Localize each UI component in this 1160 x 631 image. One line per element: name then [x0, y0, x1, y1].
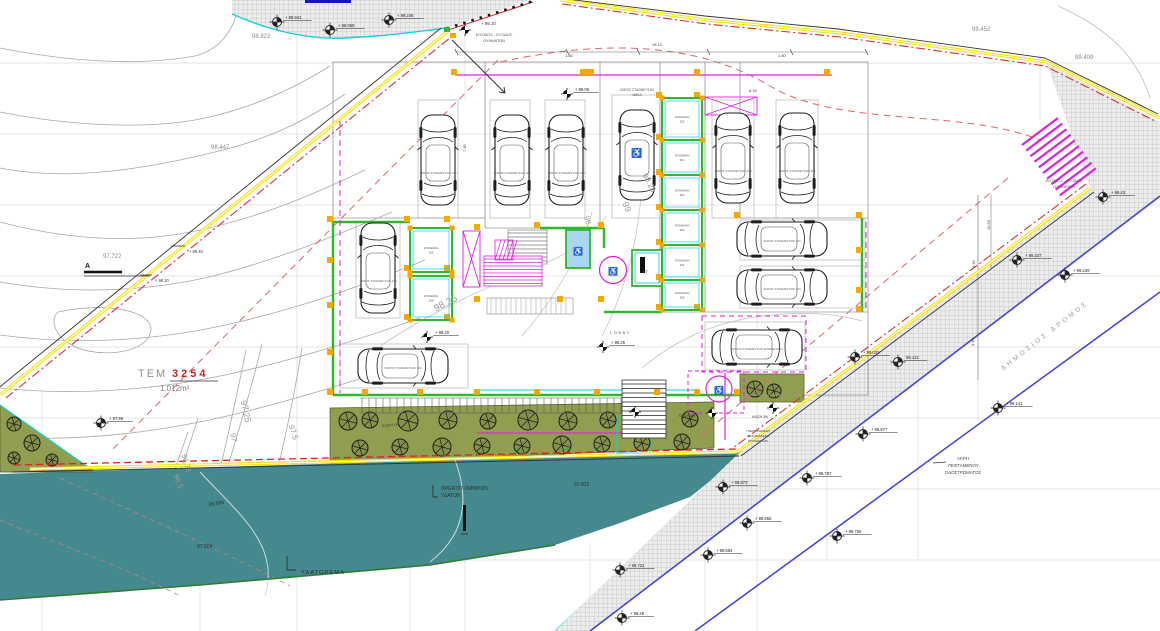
- benchmark-label: + 98.722: [628, 563, 645, 568]
- parked-car: [418, 115, 459, 205]
- map-label: ΑΜΕΑ: [632, 93, 642, 97]
- tree-icon: [8, 452, 20, 464]
- parked-car: [777, 113, 818, 203]
- room-label: ΑΠΟΘΗΚΗ: [675, 154, 690, 158]
- column-block: [660, 173, 665, 178]
- map-label: 99.452: [972, 27, 991, 33]
- dot: [512, 6, 515, 9]
- tree-icon: [439, 411, 457, 429]
- map-label: LOBBY: [610, 330, 631, 335]
- tree-icon: [398, 411, 418, 431]
- map-label: ΥΠΕΡΥΨΩΜΕΝΗ: [746, 429, 771, 433]
- column-block: [557, 296, 563, 302]
- column-block: [700, 96, 705, 101]
- wheelchair-icon: ♿: [573, 246, 583, 256]
- map-label: ΥΔΑΤΟΡΕΜΑ: [301, 570, 345, 576]
- benchmark-label: + 99.337: [1025, 253, 1042, 258]
- column-block: [660, 138, 665, 143]
- column-block: [824, 69, 830, 75]
- column-block: [408, 226, 413, 231]
- map-label: 15.50: [986, 219, 991, 230]
- map-label: 98.447: [211, 145, 230, 151]
- tree-icon: [7, 417, 21, 431]
- room-number: 304: [680, 263, 685, 267]
- parked-car: [492, 115, 533, 205]
- benchmark-label: + 98.655: [755, 516, 772, 521]
- wheelchair-icon: ♿: [608, 266, 618, 276]
- column-block: [654, 389, 660, 395]
- map-label: ΥΦΙΣΤΑΜΕΝΟΥ: [947, 463, 978, 468]
- map-label: LIFT: [640, 270, 648, 274]
- map-label: 1.012m²: [160, 384, 190, 393]
- column-block: [327, 302, 333, 308]
- column-block: [327, 216, 333, 222]
- column-block: [594, 389, 600, 395]
- map-label: 1.80: [565, 53, 574, 58]
- column-block: [451, 69, 457, 75]
- map-label: + 98.40: [189, 249, 203, 254]
- map-label: ΟΧΗΜΑΤΩΝ: [1053, 184, 1075, 189]
- map-label: ΥΔΑΤΩΝ: [441, 493, 461, 499]
- map-label: 3.45: [971, 259, 976, 268]
- parked-car: [546, 115, 587, 205]
- dot: [455, 24, 458, 27]
- tree-icon: [392, 439, 408, 455]
- car-icon: [713, 113, 754, 203]
- dot: [479, 16, 482, 19]
- room-label: ΑΠΟΘΗΚΗ: [675, 224, 690, 228]
- room-label: ΑΠΟΘΗΚΗ: [424, 294, 439, 298]
- column-block: [580, 69, 594, 75]
- parking-spot-label: ΧΩΡΟΣ ΣΤΑΘΜΕΥΣΗΣ 103: [359, 279, 397, 283]
- parking-spot-label: ΧΩΡΟΣ ΣΤΑΘΜΕΥΣΗΣ 101: [384, 366, 422, 370]
- car-icon: [546, 115, 587, 205]
- column-block: [404, 216, 410, 222]
- map-label: 1.80: [778, 53, 787, 58]
- map-label: 97.812: [574, 482, 590, 488]
- map-label: + 99.10: [481, 21, 496, 26]
- column-block: [408, 318, 413, 323]
- entrance-orange-mark: [450, 33, 456, 38]
- column-block: [660, 208, 665, 213]
- parking-spot-label: ΧΩΡΟΣ ΣΤΑΘΜΕΥΣΗΣ 303: [763, 287, 801, 291]
- column-block: [474, 296, 480, 302]
- tree-icon: [594, 436, 610, 452]
- car-icon: [777, 113, 818, 203]
- column-block: [444, 216, 450, 222]
- room-number: 301: [680, 158, 685, 162]
- column-block: [327, 389, 333, 395]
- map-label: 98.822: [252, 34, 271, 40]
- benchmark-label: + 99.141: [1006, 401, 1023, 406]
- column-block: [660, 243, 665, 248]
- wheelchair-icon: ♿: [631, 147, 642, 158]
- column-block: [856, 212, 862, 218]
- column-block: [450, 318, 455, 323]
- map-label: ΠΕΖΟΔΙΑΒΑΣΗ: [747, 434, 769, 438]
- benchmark-label: + 99.43: [1111, 190, 1126, 195]
- room-number: 104: [429, 299, 434, 303]
- room-label: ΑΠΟΘΗΚΗ: [675, 291, 690, 295]
- map-label: ΚΛΙΣΗ 5%: [679, 414, 695, 418]
- column-block: [856, 287, 862, 293]
- column-block: [362, 389, 368, 395]
- map-label: + 98.10: [155, 278, 169, 283]
- map-label: 97.004: [197, 544, 213, 550]
- tree-icon: [352, 440, 368, 456]
- map-label: 7.45: [462, 143, 467, 152]
- benchmark-label: + 98.958: [338, 23, 355, 28]
- column-block: [734, 389, 740, 395]
- column-block: [327, 349, 333, 355]
- tree-icon: [362, 412, 378, 428]
- map-label: ΤΕΜ: [138, 368, 167, 380]
- benchmark-label: + 98.48: [630, 611, 645, 616]
- room-number: 103: [429, 251, 434, 255]
- wheelchair-icon: ♿: [714, 385, 724, 395]
- car-icon: [492, 115, 533, 205]
- dot: [529, 1, 532, 4]
- tree-icon: [514, 438, 530, 454]
- map-label: 99.409: [1075, 55, 1094, 61]
- map-label: ΟΧΗΜΑΤΩΝ: [483, 38, 505, 43]
- entrance-green-mark: [444, 27, 450, 32]
- map-label: 3254: [172, 368, 208, 380]
- room-label: ΑΠΟΘΗΚΗ: [424, 246, 439, 250]
- tree-icon: [339, 412, 357, 430]
- benchmark-label: + 98.25: [611, 340, 626, 345]
- tree-icon: [480, 413, 496, 429]
- room-number: 303: [680, 228, 685, 232]
- tree-icon: [553, 436, 571, 454]
- site-plan-canvas: ♿ ♿ ♿: [0, 0, 1160, 631]
- column-block: [700, 138, 705, 143]
- map-label: 18.10: [652, 42, 663, 47]
- column-block: [700, 278, 705, 283]
- column-block: [700, 173, 705, 178]
- benchmark-label: + 98.20: [435, 330, 450, 335]
- site-plan-svg: ♿ ♿ ♿: [0, 0, 1160, 631]
- dot: [504, 8, 507, 11]
- column-block: [660, 308, 665, 313]
- room-number: 305: [680, 296, 685, 300]
- map-label: ΕΙΣΟΔΟΣ - ΕΞΟΔΟΣ: [476, 32, 513, 37]
- parking-spot-label: ΧΩΡΟΣ ΣΤΑΘΜΕΥΣΗΣ ΕΠΙΣΚΕΠΤΩΝ: [731, 347, 782, 351]
- benchmark-label: + 99.05: [575, 87, 590, 92]
- benchmark-label: + 98.758: [845, 529, 862, 534]
- parking-spot-label: ΧΩΡΟΣ ΣΤΑΘΜΕΥΣΗΣ 301: [778, 169, 816, 173]
- benchmark-label: + 99.031: [863, 350, 880, 355]
- benchmark-label: + 98.787: [815, 471, 832, 476]
- lift-shaft: [632, 250, 662, 286]
- car-icon: [358, 223, 399, 313]
- column-block: [534, 389, 540, 395]
- parking-spot-label: ΧΩΡΟΣ ΣΤΑΘΜΕΥΣΗΣ 302: [763, 239, 801, 243]
- dot: [488, 14, 491, 17]
- column-block: [700, 243, 705, 248]
- tree-icon: [559, 412, 577, 430]
- column-block: [700, 208, 705, 213]
- tree-icon: [24, 435, 40, 451]
- map-label: A: [85, 263, 90, 270]
- parking-spot-label: ΧΩΡΟΣ ΣΤΑΘΜΕΥΣΗΣ 201: [493, 171, 531, 175]
- car-icon: [418, 115, 459, 205]
- room-label: ΑΠΟΘΗΚΗ: [675, 189, 690, 193]
- stair-flight-b: [484, 256, 542, 286]
- column-block: [327, 257, 333, 263]
- parked-car: [358, 223, 399, 313]
- column-block: [856, 247, 862, 253]
- map-label: ΕΠΙΣΚΕΠΤΩΝ: [748, 439, 768, 443]
- map-label: ΟΔΟΣΤΡΩΜΑΤΟΣ: [945, 470, 981, 475]
- benchmark-label: + 98.877: [871, 427, 888, 432]
- benchmark-label: 98.132: [906, 355, 919, 360]
- parking-spot-label: ΧΩΡΟΣ ΣΤΑΘΜΕΥΣΗΣ 102: [419, 171, 457, 175]
- column-block: [694, 69, 700, 75]
- room-number: 202: [680, 120, 685, 124]
- tree-icon: [433, 438, 451, 456]
- map-label: ΕΙΣΟΔΟΣ - ΕΞΟΔΟΣ: [1046, 178, 1083, 183]
- room-label: ΑΠΟΘΗΚΗ: [675, 115, 690, 119]
- tree-icon: [474, 438, 490, 454]
- column-block: [450, 274, 455, 279]
- tree-icon: [600, 412, 616, 428]
- column-block: [474, 389, 480, 395]
- parking-spot-label: ΧΩΡΟΣ ΣΤΑΘΜΕΥΣΗΣ 203: [714, 169, 752, 173]
- map-label: ΚΛΙΣΗ 3%: [752, 415, 768, 419]
- top-navy-segment: [305, 0, 351, 3]
- benchmark-label: + 99.239: [1073, 268, 1090, 273]
- room-label: ΑΠΟΘΗΚΗ: [675, 259, 690, 263]
- dot: [463, 21, 466, 24]
- column-block: [417, 389, 423, 395]
- column-block: [408, 274, 413, 279]
- benchmark-label: + 98.941: [285, 15, 302, 20]
- column-block: [474, 224, 480, 230]
- parked-car: [713, 113, 754, 203]
- map-label: 97.722: [103, 254, 122, 260]
- column-block: [598, 296, 604, 302]
- benchmark-label: + 99.246: [397, 13, 414, 18]
- column-block: [534, 222, 540, 228]
- benchmark-label: + 98.673: [731, 480, 748, 485]
- benchmark-label: + 98.584: [716, 548, 733, 553]
- tree-icon: [767, 384, 781, 398]
- column-block: [450, 226, 455, 231]
- column-block: [700, 308, 705, 313]
- map-label: ΦΡΕΑΤΙΟ ΟΜΒΡΙΩΝ: [441, 486, 488, 492]
- tree-icon: [674, 434, 690, 450]
- column-block: [856, 306, 862, 312]
- column-block: [660, 96, 665, 101]
- map-label: ΧΩΡΟΣ ΣΤΑΘΜΕΥΣΗΣ: [620, 88, 654, 92]
- benchmark-label: + 97.96: [109, 416, 124, 421]
- column-block: [734, 212, 740, 218]
- dot: [520, 3, 523, 6]
- room-number: 302: [680, 193, 685, 197]
- column-block: [694, 389, 700, 395]
- dot: [496, 11, 499, 14]
- map-label: 6.15: [749, 88, 758, 93]
- map-label: 3.10: [970, 337, 975, 346]
- column-block: [660, 278, 665, 283]
- map-label: ΑΚΡΗ: [957, 456, 969, 461]
- parking-spot-label: ΧΩΡΟΣ ΣΤΑΘΜΕΥΣΗΣ 202: [547, 171, 585, 175]
- dot: [471, 19, 474, 22]
- column-block: [598, 222, 604, 228]
